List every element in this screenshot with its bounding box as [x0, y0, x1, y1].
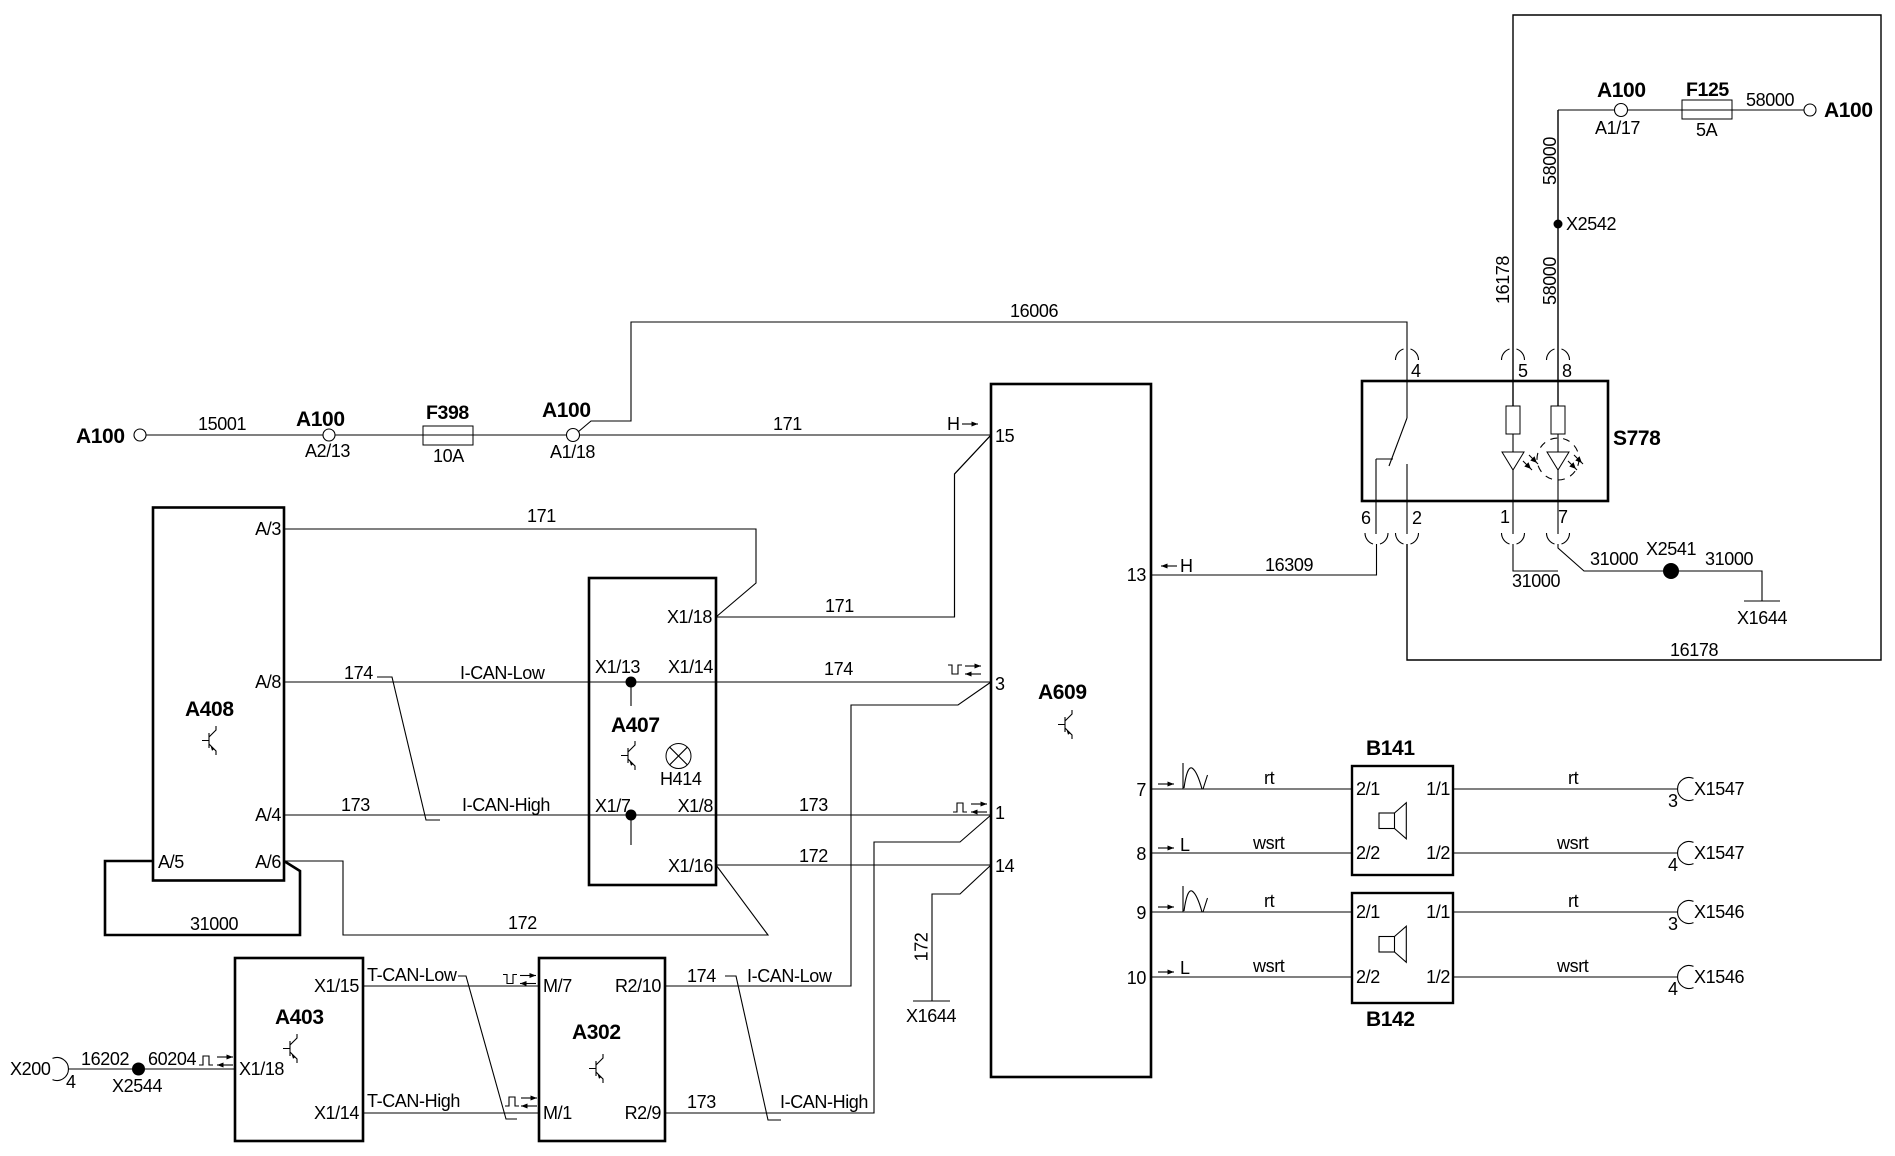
svg-text:2: 2: [1412, 508, 1422, 528]
svg-text:T-CAN-High: T-CAN-High: [367, 1091, 460, 1111]
svg-text:1/2: 1/2: [1426, 843, 1450, 863]
svg-text:1: 1: [1500, 507, 1510, 527]
svg-text:H: H: [947, 414, 960, 434]
svg-text:6: 6: [1361, 508, 1371, 528]
svg-text:B141: B141: [1366, 737, 1415, 760]
svg-text:rt: rt: [1264, 768, 1275, 788]
svg-text:172: 172: [799, 846, 828, 866]
svg-text:A1/17: A1/17: [1595, 118, 1640, 138]
svg-text:3: 3: [995, 674, 1005, 694]
svg-text:R2/10: R2/10: [615, 976, 661, 996]
svg-text:58000: 58000: [1540, 257, 1560, 305]
svg-text:X1/8: X1/8: [678, 796, 714, 816]
svg-text:wsrt: wsrt: [1252, 956, 1285, 976]
svg-text:58000: 58000: [1540, 137, 1560, 185]
svg-text:I-CAN-Low: I-CAN-Low: [747, 966, 833, 986]
svg-text:31000: 31000: [190, 914, 238, 934]
svg-text:X2541: X2541: [1646, 539, 1696, 559]
svg-text:1: 1: [995, 803, 1005, 823]
svg-text:A100: A100: [76, 425, 125, 448]
svg-text:L: L: [1180, 958, 1190, 978]
svg-text:A403: A403: [275, 1006, 324, 1029]
svg-text:16202: 16202: [81, 1049, 129, 1069]
svg-text:171: 171: [527, 506, 556, 526]
svg-text:wsrt: wsrt: [1556, 833, 1589, 853]
svg-text:A408: A408: [185, 698, 234, 721]
svg-text:58000: 58000: [1746, 90, 1794, 110]
svg-text:I-CAN-High: I-CAN-High: [462, 795, 550, 815]
svg-text:1/1: 1/1: [1426, 902, 1450, 922]
svg-text:2/2: 2/2: [1356, 967, 1380, 987]
svg-text:9: 9: [1136, 903, 1146, 923]
svg-text:4: 4: [1411, 361, 1421, 381]
svg-text:5A: 5A: [1696, 120, 1718, 140]
svg-text:A100: A100: [1824, 99, 1873, 122]
svg-text:X1546: X1546: [1694, 902, 1744, 922]
svg-text:2/1: 2/1: [1356, 779, 1380, 799]
svg-text:3: 3: [1668, 914, 1678, 934]
svg-text:rt: rt: [1264, 891, 1275, 911]
svg-text:31000: 31000: [1705, 549, 1753, 569]
svg-text:R2/9: R2/9: [625, 1103, 662, 1123]
svg-text:A100: A100: [296, 408, 345, 431]
svg-text:173: 173: [799, 795, 828, 815]
svg-text:I-CAN-High: I-CAN-High: [780, 1092, 868, 1112]
svg-text:16178: 16178: [1670, 640, 1718, 660]
svg-text:A2/13: A2/13: [305, 441, 350, 461]
svg-text:A100: A100: [542, 399, 591, 422]
svg-text:A1/18: A1/18: [550, 442, 595, 462]
svg-text:I-CAN-Low: I-CAN-Low: [460, 663, 546, 683]
svg-text:X1/13: X1/13: [595, 657, 640, 677]
svg-text:13: 13: [1127, 565, 1147, 585]
svg-text:T-CAN-Low: T-CAN-Low: [367, 965, 458, 985]
svg-text:H414: H414: [660, 769, 702, 789]
svg-text:wsrt: wsrt: [1556, 956, 1589, 976]
svg-text:X1/14: X1/14: [668, 657, 713, 677]
svg-text:A/8: A/8: [255, 672, 281, 692]
svg-text:A302: A302: [572, 1021, 621, 1044]
svg-text:8: 8: [1136, 844, 1146, 864]
svg-text:7: 7: [1136, 780, 1146, 800]
svg-text:S778: S778: [1613, 427, 1661, 450]
svg-text:L: L: [1180, 835, 1190, 855]
svg-text:X1644: X1644: [1737, 608, 1787, 628]
svg-text:X200: X200: [10, 1059, 51, 1079]
svg-text:X2542: X2542: [1566, 214, 1616, 234]
svg-text:173: 173: [687, 1092, 716, 1112]
svg-text:7: 7: [1558, 507, 1568, 527]
svg-text:X1/18: X1/18: [239, 1059, 284, 1079]
svg-text:8: 8: [1562, 361, 1572, 381]
svg-text:16309: 16309: [1265, 555, 1313, 575]
svg-text:X1/7: X1/7: [595, 796, 631, 816]
svg-text:rt: rt: [1568, 768, 1579, 788]
svg-text:F398: F398: [426, 402, 469, 424]
svg-text:1/2: 1/2: [1426, 967, 1450, 987]
svg-text:A407: A407: [611, 714, 660, 737]
svg-text:X1547: X1547: [1694, 843, 1744, 863]
svg-text:173: 173: [341, 795, 370, 815]
svg-text:15001: 15001: [198, 414, 246, 434]
svg-text:5: 5: [1518, 361, 1528, 381]
svg-text:172: 172: [508, 913, 537, 933]
svg-text:M/7: M/7: [543, 976, 572, 996]
svg-text:X1/15: X1/15: [314, 976, 359, 996]
svg-text:15: 15: [995, 426, 1015, 446]
svg-text:A609: A609: [1038, 681, 1087, 704]
svg-text:2/2: 2/2: [1356, 843, 1380, 863]
svg-text:X1/16: X1/16: [668, 856, 713, 876]
svg-text:2/1: 2/1: [1356, 902, 1380, 922]
svg-text:B142: B142: [1366, 1008, 1415, 1031]
svg-text:171: 171: [825, 596, 854, 616]
svg-text:172: 172: [912, 932, 932, 961]
svg-text:3: 3: [1668, 791, 1678, 811]
svg-text:X1547: X1547: [1694, 779, 1744, 799]
svg-text:X1/14: X1/14: [314, 1103, 359, 1123]
svg-text:14: 14: [995, 856, 1015, 876]
svg-text:16178: 16178: [1493, 256, 1513, 304]
svg-text:X1546: X1546: [1694, 967, 1744, 987]
svg-text:174: 174: [687, 966, 716, 986]
svg-text:16006: 16006: [1010, 301, 1058, 321]
svg-text:wsrt: wsrt: [1252, 833, 1285, 853]
svg-text:60204: 60204: [148, 1049, 196, 1069]
svg-text:174: 174: [344, 663, 373, 683]
svg-text:4: 4: [1668, 855, 1678, 875]
svg-text:10A: 10A: [433, 446, 464, 466]
svg-text:31000: 31000: [1512, 571, 1560, 591]
svg-text:174: 174: [824, 659, 853, 679]
svg-text:4: 4: [66, 1072, 76, 1092]
svg-text:X1644: X1644: [906, 1006, 956, 1026]
svg-text:M/1: M/1: [543, 1103, 572, 1123]
svg-text:A/4: A/4: [255, 805, 281, 825]
svg-text:F125: F125: [1686, 79, 1729, 101]
svg-text:X2544: X2544: [112, 1076, 162, 1096]
svg-text:1/1: 1/1: [1426, 779, 1450, 799]
svg-text:A100: A100: [1597, 79, 1646, 102]
svg-text:rt: rt: [1568, 891, 1579, 911]
svg-text:10: 10: [1127, 968, 1147, 988]
svg-text:X1/18: X1/18: [667, 607, 712, 627]
svg-text:H: H: [1180, 556, 1193, 576]
svg-text:4: 4: [1668, 979, 1678, 999]
svg-text:A/5: A/5: [158, 852, 184, 872]
svg-text:A/6: A/6: [255, 852, 281, 872]
svg-text:171: 171: [773, 414, 802, 434]
svg-text:31000: 31000: [1590, 549, 1638, 569]
svg-text:A/3: A/3: [255, 519, 281, 539]
